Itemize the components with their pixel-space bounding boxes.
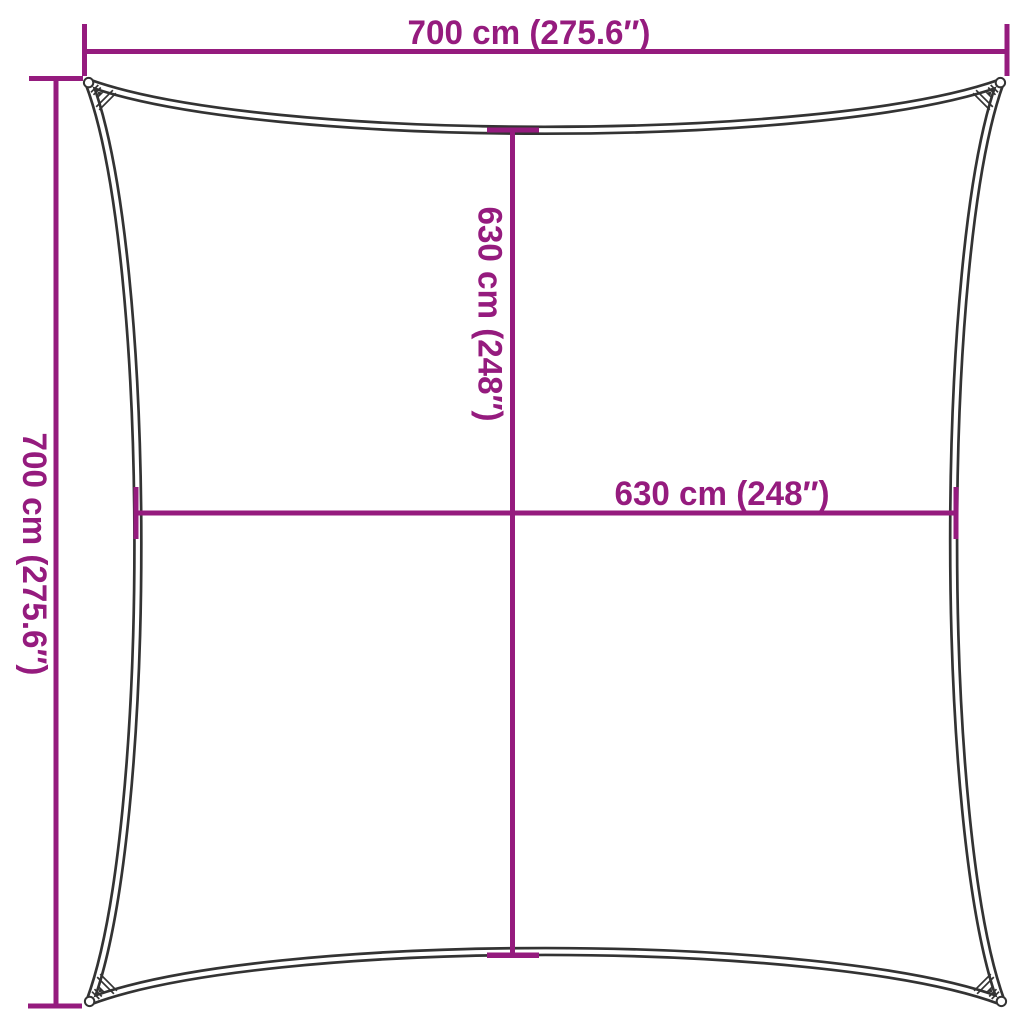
svg-text:630 cm (248″): 630 cm (248″) — [615, 475, 830, 513]
svg-text:700 cm (275.6″): 700 cm (275.6″) — [15, 433, 53, 676]
svg-text:700 cm (275.6″): 700 cm (275.6″) — [408, 14, 651, 52]
svg-text:630 cm (248″): 630 cm (248″) — [471, 207, 509, 422]
